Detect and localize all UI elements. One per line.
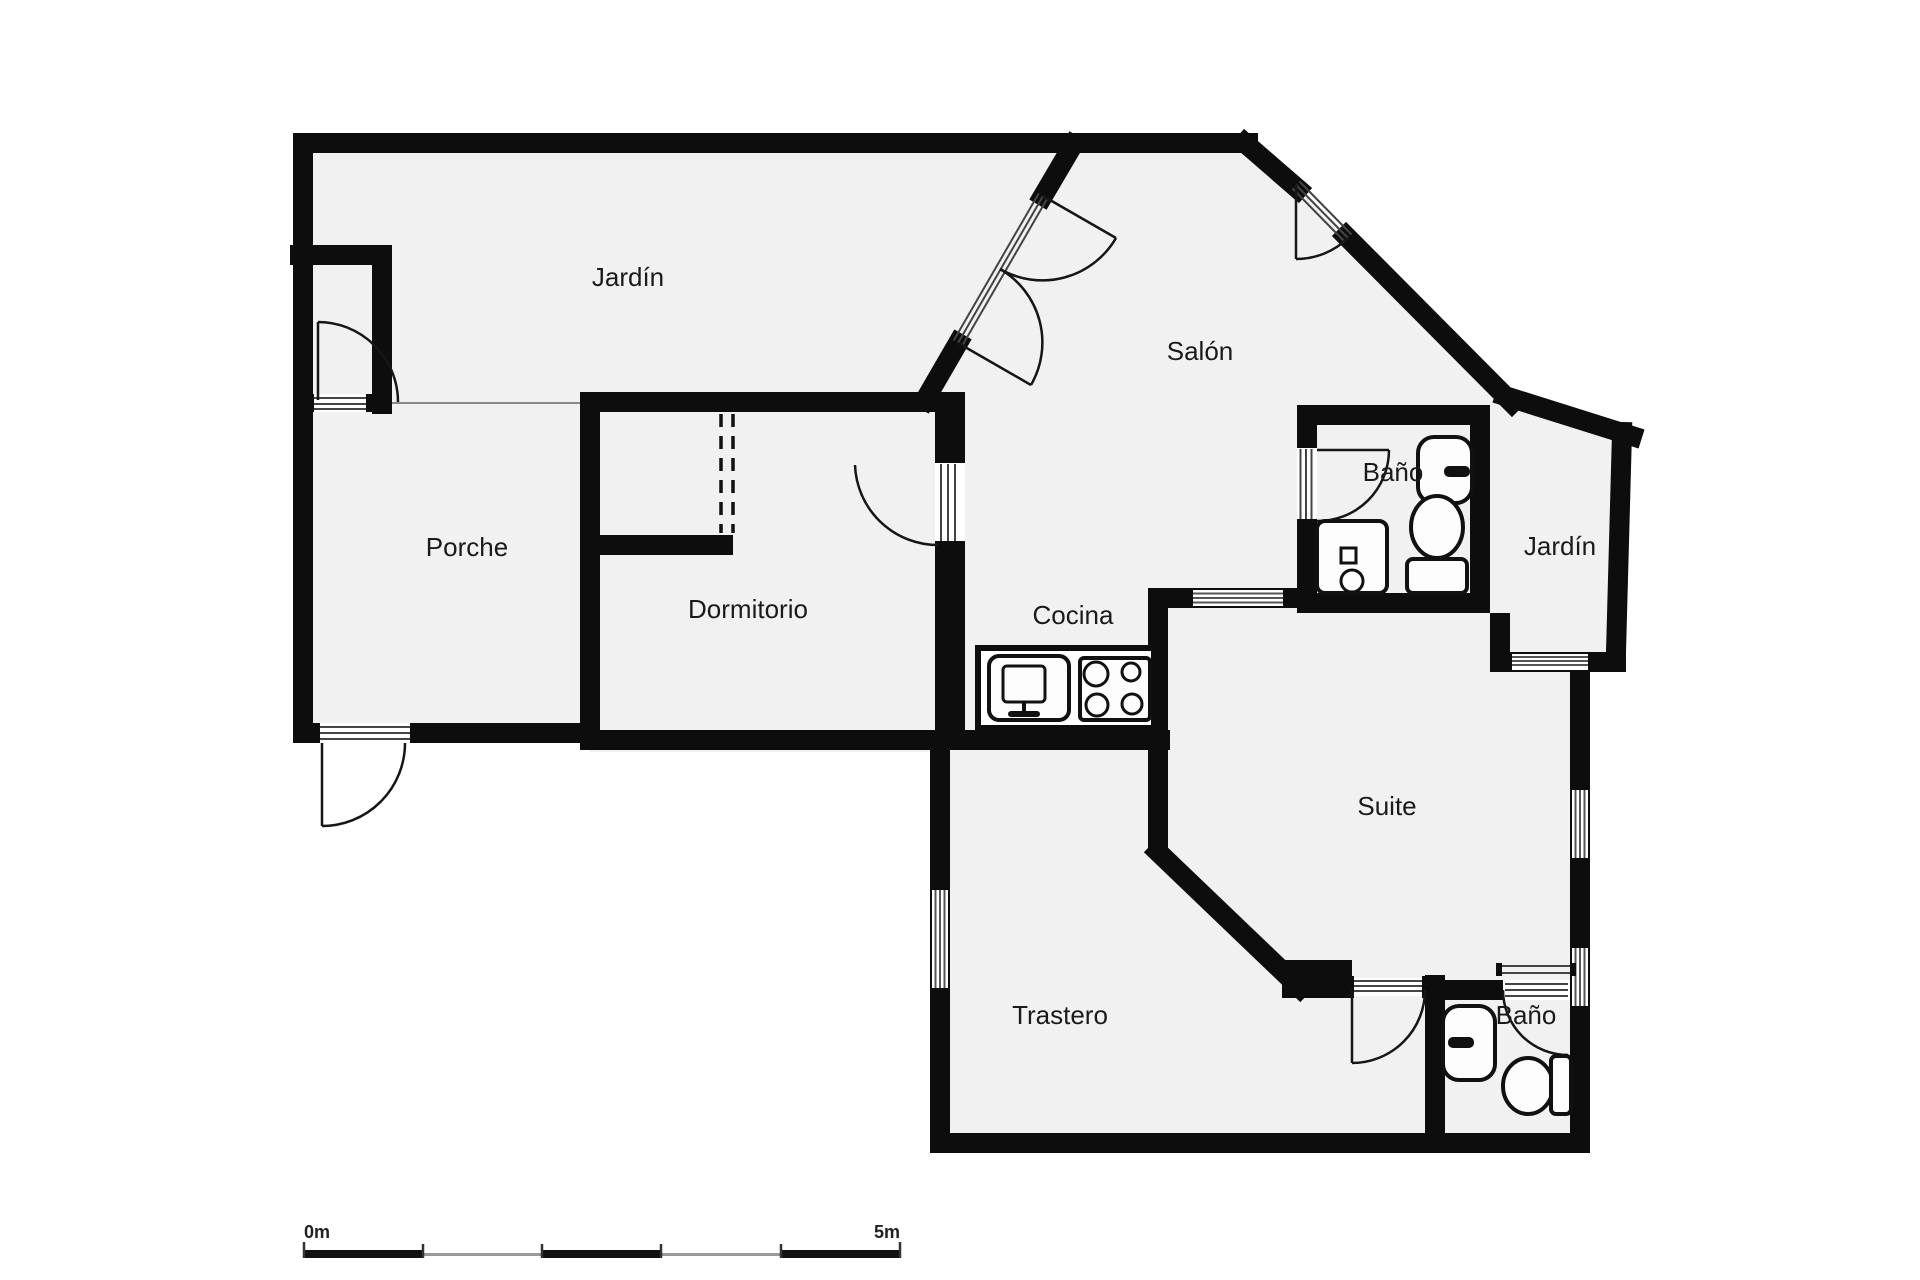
room-label-suite: Suite (1357, 791, 1416, 821)
cocina-fixtures (975, 645, 1157, 731)
window-suite-right-1 (1570, 785, 1590, 863)
stove-icon (1080, 658, 1150, 720)
kitchen-sink-icon (989, 656, 1069, 720)
washing-machine-icon (1317, 521, 1387, 593)
toilet-icon (1407, 496, 1467, 593)
floor-plan-svg: Jardín Salón Baño Jardín Porche Dormitor… (0, 0, 1920, 1280)
sink-icon (1443, 1006, 1495, 1080)
floor-plan-page: Jardín Salón Baño Jardín Porche Dormitor… (0, 0, 1920, 1280)
room-label-jardin-right: Jardín (1524, 531, 1596, 561)
room-label-trastero: Trastero (1012, 1000, 1108, 1030)
room-label-salon: Salón (1167, 336, 1234, 366)
window-trastero-left (930, 885, 950, 993)
window-suite-top (1188, 588, 1288, 608)
scale-bar: 0m 5m (304, 1222, 900, 1258)
scale-start-label: 0m (304, 1222, 330, 1242)
room-label-cocina: Cocina (1033, 600, 1114, 630)
room-label-bano-bottom: Baño (1496, 1000, 1557, 1030)
door-porche-exterior (313, 723, 417, 826)
toilet-icon (1503, 1056, 1571, 1114)
sink-icon (1418, 437, 1472, 503)
room-label-dormitorio: Dormitorio (688, 594, 808, 624)
room-label-porche: Porche (426, 532, 508, 562)
window-suite-right-2 (1570, 943, 1590, 1011)
window-jardin-right-bottom (1507, 652, 1593, 672)
room-label-bano-top: Baño (1363, 457, 1424, 487)
scale-end-label: 5m (874, 1222, 900, 1242)
room-label-jardin-top: Jardín (592, 262, 664, 292)
